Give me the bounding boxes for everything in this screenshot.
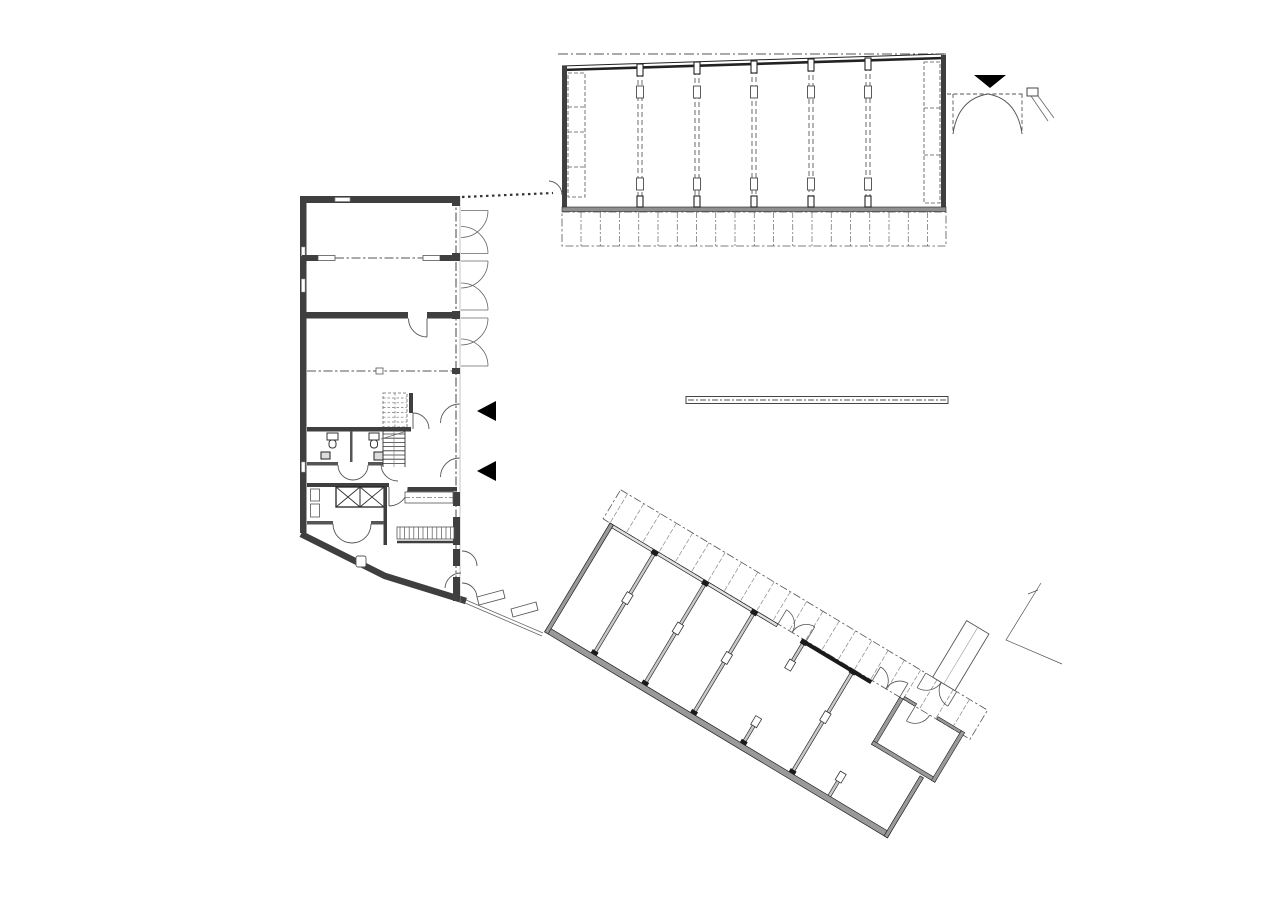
column-top: [808, 59, 814, 71]
arcade-doors-bay1: [461, 211, 488, 254]
column-base: [808, 196, 814, 207]
canopy-door-leaf: [872, 667, 880, 681]
lower-wall: [371, 521, 384, 525]
partition2-door-arc: [409, 319, 428, 338]
site-boundary-tick: [1028, 590, 1038, 594]
canopy-front-leaf: [948, 692, 957, 707]
south-edge-door-arc: [462, 551, 477, 566]
south-partition-1: [590, 549, 659, 658]
partition1-window: [318, 256, 335, 261]
north-left-wall: [562, 66, 567, 211]
wc-door-arc: [353, 465, 368, 480]
canopy-door-arc: [778, 610, 801, 633]
column-line-5: [865, 58, 872, 207]
corner-room-wall: [903, 697, 917, 707]
toilet-bowl: [371, 440, 378, 448]
column-base: [694, 196, 700, 207]
entry-door-arc: [953, 94, 988, 134]
column-pad: [865, 86, 872, 98]
small-wc: [356, 556, 366, 567]
partition-wall: [789, 669, 855, 776]
column-pad: [808, 178, 815, 190]
west-top-window: [335, 198, 350, 202]
inner-door-arc: [441, 458, 460, 477]
north-right-wall: [941, 55, 946, 211]
south-partition-3: [689, 609, 758, 718]
south-canopy-rungs-7: [724, 562, 742, 591]
south-canopy-rungs-13: [822, 621, 840, 650]
column-line-1: [637, 64, 644, 207]
south-canopy-rungs-19: [919, 680, 937, 709]
south-canopy-rungs-15: [854, 641, 872, 670]
entry-door-arc: [988, 94, 1022, 134]
door-arc: [461, 227, 488, 254]
exterior-pad: [511, 602, 538, 617]
corner-room-door-leaf: [906, 706, 915, 721]
entry-side-leaf-swing: [1038, 96, 1054, 118]
edge-block: [452, 368, 460, 374]
south-canopy-rungs-6: [708, 553, 726, 582]
arcade-doors-bay2: [461, 261, 488, 310]
sink: [321, 452, 330, 459]
stairhall-wall: [307, 427, 411, 432]
south-partition-2: [640, 579, 709, 688]
column-top: [637, 64, 643, 76]
corner-room-wall: [871, 741, 936, 783]
tread-band: [397, 527, 454, 539]
canopy-door-arc: [792, 618, 815, 641]
south-canopy-rungs-4: [675, 533, 693, 562]
south-partition-5: [788, 668, 857, 777]
west-top-wall: [300, 196, 460, 203]
partition-wall: [591, 550, 657, 657]
partition1-window: [423, 256, 440, 261]
south-canopy-rungs: [610, 494, 970, 729]
column-line-4: [808, 59, 815, 207]
sink: [374, 452, 383, 460]
wc-door-arc: [338, 465, 353, 480]
south-partition-4-stubs: [739, 638, 808, 747]
door-arc: [461, 283, 488, 310]
cabinet: [311, 504, 320, 517]
inner-door-arc: [441, 404, 460, 423]
south-canopy-rungs-2: [643, 513, 661, 542]
south-canopy-rungs-14: [838, 631, 856, 660]
entry-direction-arrow: [974, 75, 1006, 88]
south-canopy-rungs-12: [805, 611, 823, 640]
partition1-block: [440, 255, 452, 261]
edge-block: [452, 253, 460, 261]
door-arc: [461, 318, 488, 345]
column-pad: [865, 178, 872, 190]
site-boundary: [1006, 583, 1062, 664]
column-pad: [751, 178, 758, 190]
corner-room-wall: [871, 697, 903, 746]
cabinet: [311, 489, 320, 501]
south-right-wall: [884, 776, 923, 838]
wc-bottom-wall: [307, 462, 338, 466]
bench-room-top-wall: [408, 487, 457, 492]
lower-wall: [307, 521, 333, 525]
south-canopy-rungs-0: [610, 494, 628, 523]
toilet-bowl: [329, 440, 336, 448]
column-pad: [694, 86, 701, 98]
column-pad: [637, 178, 644, 190]
toilet: [369, 433, 379, 440]
floor-plan-page: [0, 0, 1280, 905]
link-dotted-line: [462, 193, 553, 197]
north-canopy-dividers: [581, 212, 928, 246]
canopy-door-arc: [872, 667, 894, 689]
corner-room-door-arc: [906, 706, 929, 729]
west-left-wall: [300, 196, 307, 533]
south-canopy-rungs-16: [871, 650, 889, 679]
south-hall-group: [538, 433, 1022, 848]
column-line-3: [751, 61, 758, 207]
south-canopy-rungs-10: [773, 592, 791, 621]
arcade-doors-bay3: [461, 318, 488, 366]
floor-plan-canvas: [0, 0, 1280, 905]
exterior-pad: [477, 590, 505, 605]
canopy-door-leaf: [778, 610, 786, 624]
south-canopy-rungs-9: [757, 582, 775, 611]
west-window: [302, 279, 306, 292]
south-canopy-rungs-18: [903, 670, 921, 699]
door-arc: [461, 261, 488, 288]
column-base: [637, 196, 643, 207]
edge-block: [453, 492, 460, 506]
south-canopy-rungs-5: [691, 543, 709, 572]
entry-side-leaf-swing: [1031, 96, 1048, 121]
column-pad: [694, 178, 701, 190]
partition-wall: [691, 610, 757, 717]
column-base: [865, 196, 871, 207]
stair-upper-treads: [383, 398, 407, 422]
column-line-2: [694, 62, 701, 207]
south-canopy-rungs-8: [740, 572, 758, 601]
edge-block: [453, 549, 460, 566]
edge-block: [452, 196, 460, 206]
lower-door-arc: [352, 524, 371, 543]
canopy-door-leaf: [900, 683, 908, 697]
north-bottom-wall: [562, 207, 946, 212]
column-top: [694, 62, 700, 74]
wc-divider-wall: [350, 431, 353, 462]
south-top-wall-solid: [803, 640, 872, 684]
south-canopy-rungs-1: [626, 504, 644, 533]
entry-side-leaf: [1027, 88, 1038, 96]
column-pad: [751, 86, 758, 98]
edge-block: [453, 577, 460, 601]
partition3-post: [376, 368, 383, 374]
west-window: [302, 462, 306, 472]
column-pad: [637, 86, 644, 98]
corridor-wall: [384, 487, 388, 545]
door-arc: [461, 211, 488, 238]
south-left-wall: [545, 523, 614, 634]
stair-exit-arc: [381, 464, 398, 481]
lower-door-arc: [333, 524, 352, 543]
edge-block: [452, 311, 460, 319]
south-canopy-rungs-21: [952, 699, 970, 728]
door-arc: [461, 339, 488, 366]
north-storage-left: [568, 73, 585, 197]
stairhall-wall-stub: [409, 393, 413, 413]
south-edge-door-arc: [462, 583, 477, 597]
column-base: [751, 196, 757, 207]
toilet: [327, 433, 338, 440]
north-storage-right: [924, 62, 940, 203]
canopy-door-leaf: [806, 627, 814, 641]
west-window: [302, 247, 306, 256]
column-top: [751, 61, 757, 73]
north-west-door-arc: [549, 181, 562, 195]
column-pad: [808, 86, 815, 98]
canopy-front-leaf: [917, 673, 926, 688]
partition2-wall: [302, 312, 408, 319]
flow-arrow: [477, 401, 496, 421]
flow-arrow: [477, 461, 496, 481]
south-canopy-rungs-3: [659, 523, 677, 552]
stair-door-arc: [413, 413, 429, 429]
partition2-wall: [427, 312, 452, 319]
column-top: [865, 58, 871, 70]
partition1-block: [302, 255, 318, 261]
canopy-door-arc: [886, 675, 908, 697]
corner-room-wall: [931, 731, 964, 783]
partition-wall: [642, 580, 708, 687]
